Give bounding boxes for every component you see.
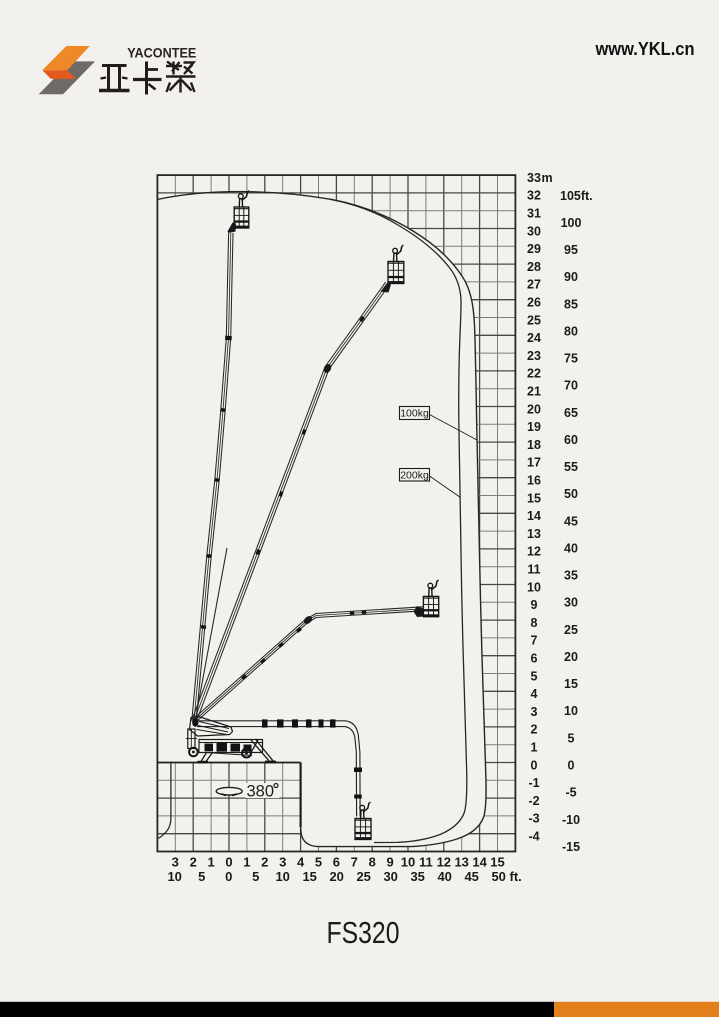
svg-text:7: 7	[351, 855, 358, 870]
svg-text:23: 23	[527, 349, 541, 363]
svg-text:10: 10	[564, 704, 578, 718]
svg-text:14: 14	[527, 509, 541, 523]
svg-text:13: 13	[454, 855, 468, 870]
svg-text:12: 12	[437, 855, 451, 870]
svg-text:13: 13	[527, 527, 541, 541]
svg-text:0: 0	[225, 869, 232, 884]
svg-text:12: 12	[527, 545, 541, 559]
svg-text:-4: -4	[528, 830, 539, 844]
svg-text:15: 15	[564, 677, 578, 691]
svg-text:-2: -2	[528, 794, 539, 808]
svg-text:20: 20	[564, 650, 578, 664]
svg-text:50: 50	[564, 487, 578, 501]
svg-text:-3: -3	[528, 812, 539, 826]
svg-text:26: 26	[527, 296, 541, 310]
svg-text:75: 75	[564, 352, 578, 366]
svg-text:45: 45	[564, 514, 578, 528]
svg-text:18: 18	[527, 438, 541, 452]
svg-text:25: 25	[564, 623, 578, 637]
svg-text:29: 29	[527, 242, 541, 256]
svg-text:100kg: 100kg	[400, 408, 429, 420]
svg-text:40: 40	[564, 542, 578, 556]
svg-text:25: 25	[527, 313, 541, 327]
svg-text:32: 32	[527, 189, 541, 203]
svg-text:24: 24	[527, 331, 541, 345]
svg-text:www.YKL.cn: www.YKL.cn	[595, 38, 695, 59]
svg-text:35: 35	[564, 569, 578, 583]
svg-text:11: 11	[419, 855, 433, 870]
svg-text:0: 0	[568, 759, 575, 773]
svg-text:0: 0	[225, 855, 232, 870]
svg-text:-15: -15	[562, 840, 580, 854]
svg-text:45: 45	[464, 869, 478, 884]
svg-text:21: 21	[527, 385, 541, 399]
svg-text:90: 90	[564, 270, 578, 284]
svg-text:11: 11	[527, 563, 540, 577]
svg-text:85: 85	[564, 297, 578, 311]
svg-text:3: 3	[172, 855, 179, 870]
svg-text:17: 17	[527, 456, 541, 470]
svg-text:105ft.: 105ft.	[560, 189, 593, 203]
svg-text:YACONTEE: YACONTEE	[127, 46, 196, 61]
svg-text:19: 19	[527, 420, 541, 434]
svg-text:15: 15	[490, 855, 504, 870]
svg-text:10: 10	[167, 869, 181, 884]
svg-text:5: 5	[315, 855, 322, 870]
svg-text:20: 20	[527, 402, 541, 416]
svg-text:31: 31	[527, 207, 541, 221]
svg-text:50: 50	[491, 869, 505, 884]
svg-text:5: 5	[568, 731, 575, 745]
svg-text:40: 40	[437, 869, 451, 884]
svg-text:80: 80	[564, 325, 578, 339]
svg-text:8: 8	[531, 616, 538, 630]
svg-text:3: 3	[531, 705, 538, 719]
svg-text:1: 1	[207, 855, 214, 870]
svg-text:28: 28	[527, 260, 541, 274]
svg-text:30: 30	[527, 224, 541, 238]
svg-text:1: 1	[243, 855, 250, 870]
svg-text:-1: -1	[528, 776, 539, 790]
svg-text:100: 100	[561, 216, 582, 230]
svg-text:6: 6	[333, 855, 340, 870]
svg-text:55: 55	[564, 460, 578, 474]
svg-text:3: 3	[279, 855, 286, 870]
svg-text:16: 16	[527, 474, 541, 488]
svg-text:25: 25	[356, 869, 370, 884]
svg-text:-10: -10	[562, 813, 580, 827]
svg-text:15: 15	[527, 491, 541, 505]
svg-text:14: 14	[472, 855, 487, 870]
svg-text:5: 5	[531, 669, 538, 683]
svg-text:10: 10	[401, 855, 415, 870]
svg-text:0: 0	[531, 758, 538, 772]
svg-text:33: 33	[527, 171, 541, 185]
svg-text:4: 4	[531, 687, 538, 701]
svg-text:22: 22	[527, 367, 541, 381]
svg-text:95: 95	[564, 243, 578, 257]
svg-text:70: 70	[564, 379, 578, 393]
svg-text:200kg: 200kg	[400, 469, 429, 481]
svg-text:1: 1	[531, 741, 538, 755]
svg-text:27: 27	[527, 278, 541, 292]
svg-text:7: 7	[531, 634, 538, 648]
svg-text:2: 2	[261, 855, 268, 870]
svg-text:9: 9	[531, 598, 538, 612]
svg-text:FS320: FS320	[327, 915, 400, 950]
svg-text:35: 35	[410, 869, 424, 884]
svg-text:2: 2	[190, 855, 197, 870]
svg-text:8: 8	[369, 855, 376, 870]
svg-text:9: 9	[386, 855, 393, 870]
svg-text:-5: -5	[565, 786, 576, 800]
svg-text:380: 380	[247, 783, 275, 801]
svg-text:5: 5	[198, 869, 205, 884]
svg-text:5: 5	[252, 869, 259, 884]
svg-text:20: 20	[329, 869, 343, 884]
svg-text:65: 65	[564, 406, 578, 420]
svg-text:m: m	[542, 171, 553, 185]
svg-text:30: 30	[383, 869, 397, 884]
svg-text:10: 10	[527, 580, 541, 594]
svg-text:2: 2	[531, 723, 538, 737]
svg-text:4: 4	[297, 855, 305, 870]
svg-text:6: 6	[531, 652, 538, 666]
svg-text:15: 15	[302, 869, 316, 884]
svg-text:ft.: ft.	[510, 869, 522, 884]
svg-text:30: 30	[564, 596, 578, 610]
svg-text:60: 60	[564, 433, 578, 447]
svg-text:10: 10	[275, 869, 289, 884]
